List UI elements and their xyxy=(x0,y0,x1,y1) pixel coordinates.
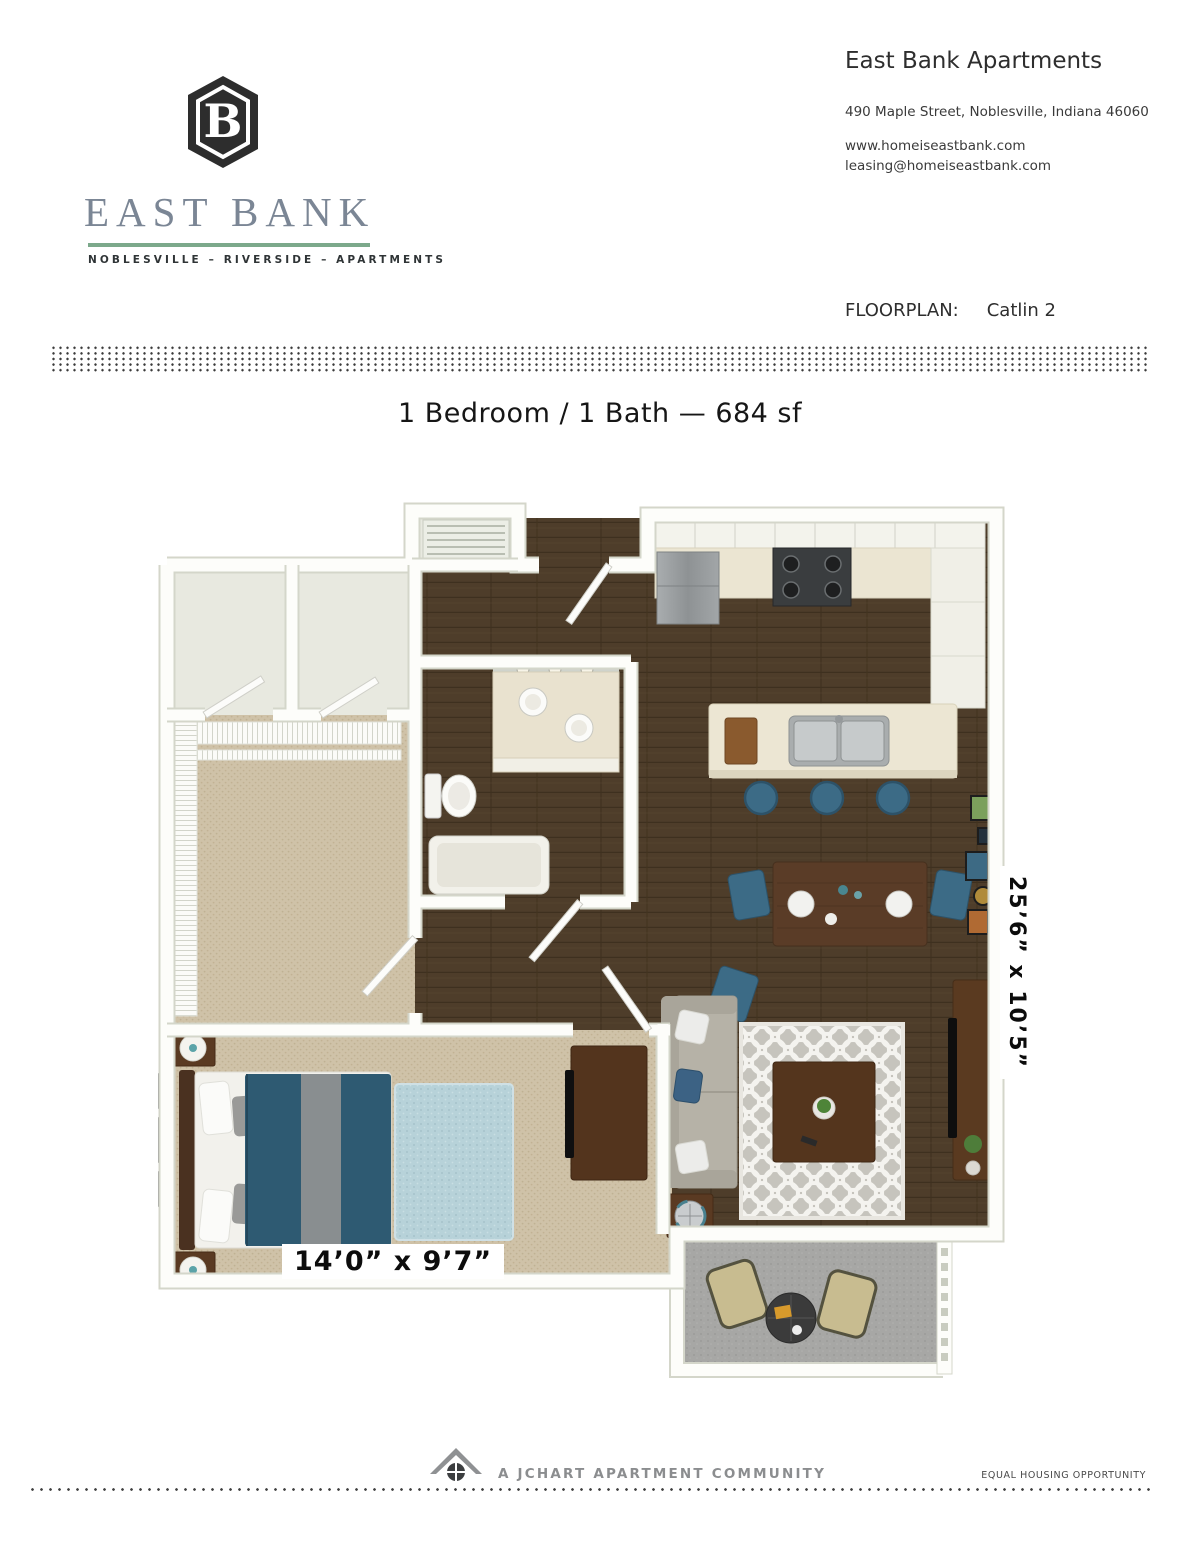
bottom-dotted-divider xyxy=(28,1486,1150,1493)
top-dotted-divider xyxy=(50,345,1147,373)
floorplan-header: FLOORPLAN: Catlin 2 xyxy=(845,300,1056,321)
sofa xyxy=(661,996,737,1188)
bed xyxy=(179,1070,391,1250)
cutting-board xyxy=(725,718,757,764)
equal-housing-text: EQUAL HOUSING OPPORTUNITY xyxy=(981,1470,1146,1481)
stove xyxy=(773,548,851,606)
island-sink xyxy=(794,721,837,761)
bathtub xyxy=(429,836,549,894)
logo-monogram: B xyxy=(204,94,243,148)
tv-screen xyxy=(948,1018,957,1138)
eastbank-hexagon-logo-icon: B xyxy=(186,74,260,170)
floorplan-label: FLOORPLAN: xyxy=(845,300,959,321)
pantry-cabinet xyxy=(931,548,985,708)
dining-chair xyxy=(727,869,770,921)
community-text: A JCHART APARTMENT COMMUNITY xyxy=(498,1466,826,1482)
jchart-house-icon xyxy=(428,1442,484,1484)
patio-table xyxy=(766,1293,816,1343)
bed-throw xyxy=(301,1074,341,1246)
summary-title: 1 Bedroom / 1 Bath — 684 sf xyxy=(0,398,1200,429)
bar-stools xyxy=(745,782,909,814)
hvac-vent-grille xyxy=(423,520,509,558)
tv-console xyxy=(948,980,991,1180)
vanity xyxy=(493,672,619,758)
coffee-table xyxy=(773,1062,875,1162)
brand-underline xyxy=(88,243,370,247)
bedroom-dimensions-label: 14’0” x 9’7” xyxy=(282,1244,504,1279)
bedroom-dresser-tv xyxy=(565,1046,647,1180)
contact-company: East Bank Apartments xyxy=(845,48,1102,74)
balcony-railing xyxy=(937,1242,952,1374)
living-dimensions-label: 25’6” x 10’5” xyxy=(1000,866,1033,1079)
floorplan-name: Catlin 2 xyxy=(987,300,1056,321)
contact-address: 490 Maple Street, Noblesville, Indiana 4… xyxy=(845,104,1149,120)
bedroom-rug xyxy=(395,1084,513,1240)
brand-name: EAST BANK xyxy=(84,188,375,236)
floorplan-image xyxy=(125,478,1075,1393)
bedroom-tv xyxy=(565,1070,574,1158)
brand-tagline: NOBLESVILLE – RIVERSIDE – APARTMENTS xyxy=(88,254,446,266)
contact-email: leasing@homeiseastbank.com xyxy=(845,158,1051,174)
contact-website: www.homeiseastbank.com xyxy=(845,138,1025,154)
flyer-page: B EAST BANK NOBLESVILLE – RIVERSIDE – AP… xyxy=(0,0,1200,1553)
refrigerator xyxy=(657,552,719,624)
toilet xyxy=(425,774,476,818)
